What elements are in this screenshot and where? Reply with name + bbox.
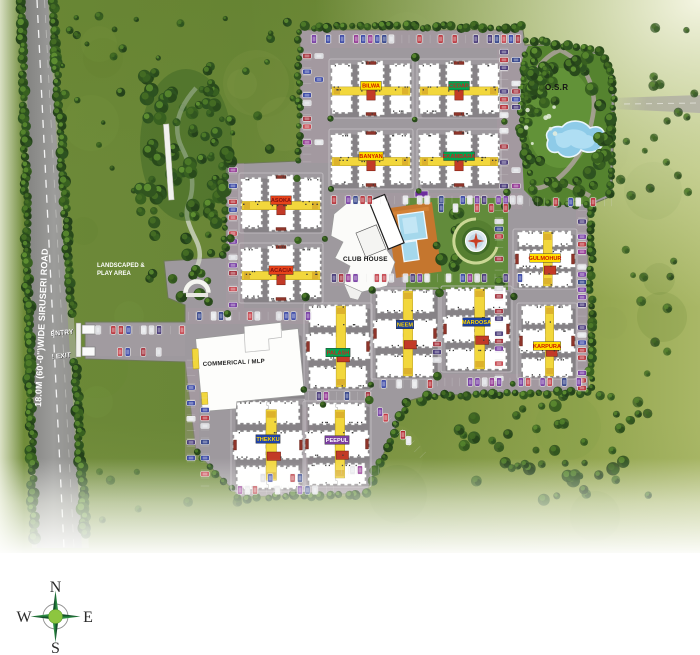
svg-text:EKAMBARA: EKAMBARA [443,154,476,160]
svg-text:CLUB HOUSE: CLUB HOUSE [343,256,388,263]
svg-text:THEKKU: THEKKU [256,437,279,443]
svg-text:CEDAR: CEDAR [449,84,469,90]
svg-text:ACACIA: ACACIA [270,268,292,274]
svg-text:E: E [83,609,93,626]
svg-text:N: N [50,579,62,596]
svg-text:W: W [16,609,32,626]
svg-text:PEEPUL: PEEPUL [326,438,349,444]
svg-text:MAROOSA: MAROOSA [462,320,491,326]
svg-text:O.S.R: O.S.R [545,83,568,92]
svg-text:S: S [51,640,60,655]
svg-text:KARPURA: KARPURA [533,344,561,350]
svg-text:BANYAN: BANYAN [359,154,382,160]
svg-text:NEEM: NEEM [397,323,414,329]
svg-text:GULMOHUR: GULMOHUR [529,256,562,262]
svg-text:PLAY AREA: PLAY AREA [97,271,131,277]
svg-text:LANDSCAPED &: LANDSCAPED & [97,263,145,269]
svg-text:PALASH: PALASH [327,351,350,357]
svg-text:ASOKA: ASOKA [271,198,291,204]
svg-text:BILWA: BILWA [362,84,380,90]
